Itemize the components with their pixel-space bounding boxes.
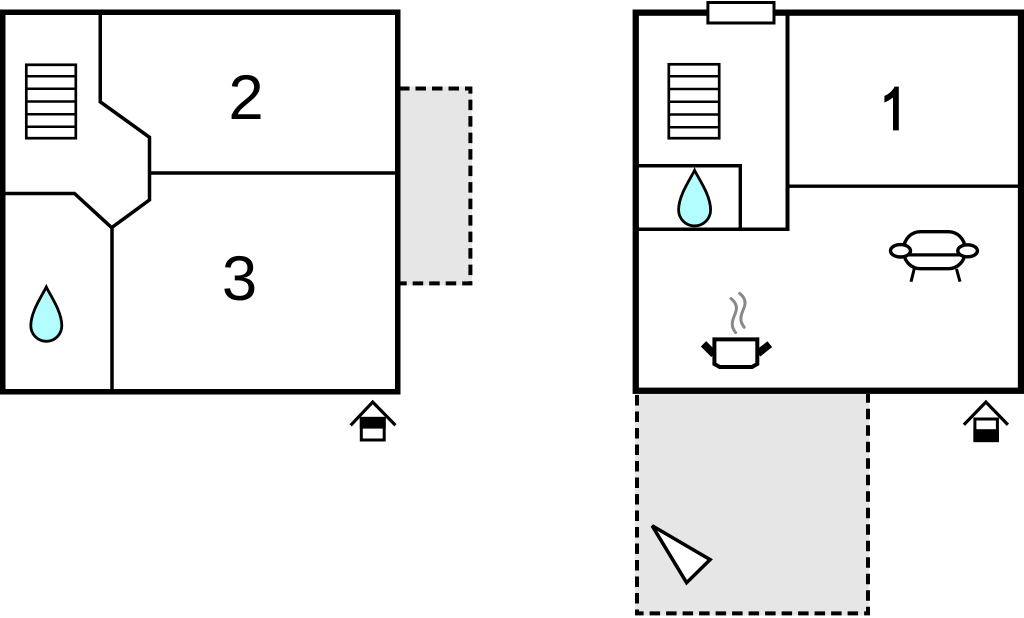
svg-text:3: 3 — [222, 244, 257, 314]
svg-text:2: 2 — [228, 63, 263, 133]
